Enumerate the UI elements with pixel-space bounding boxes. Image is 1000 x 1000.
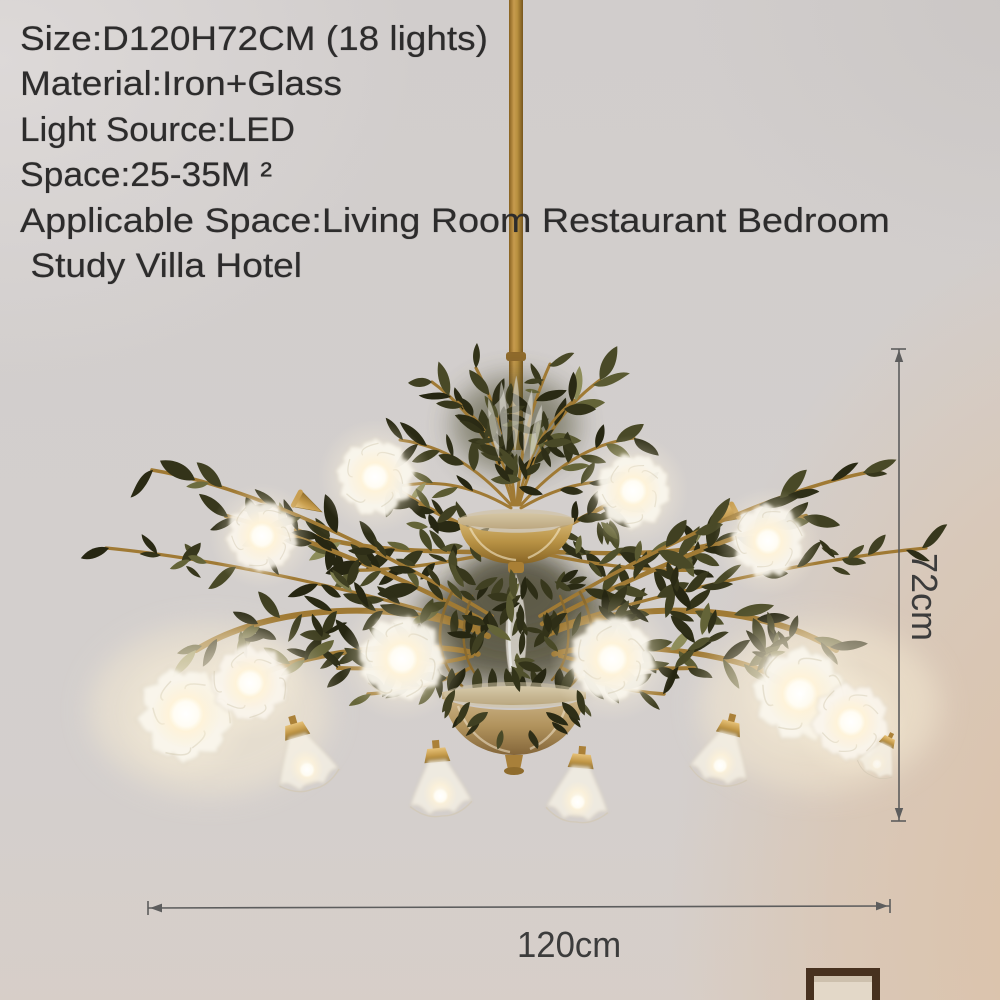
svg-text:72cm: 72cm (904, 553, 945, 641)
svg-text:120cm: 120cm (517, 925, 621, 965)
